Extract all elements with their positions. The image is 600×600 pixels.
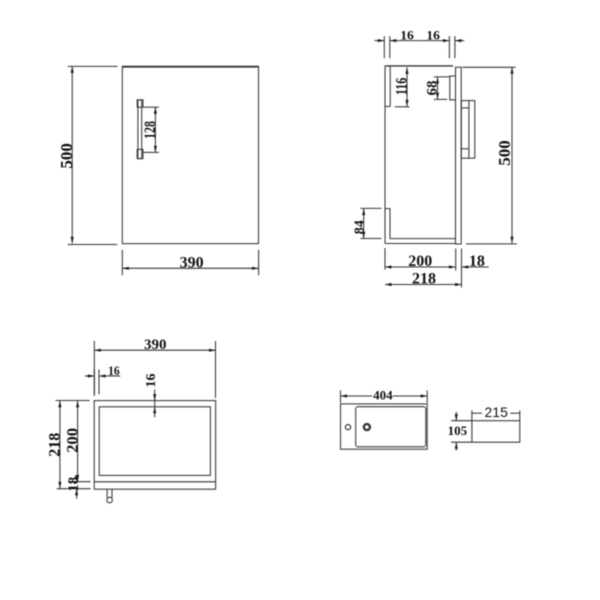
svg-text:215: 215 <box>485 404 509 420</box>
svg-text:18: 18 <box>469 253 485 270</box>
svg-text:18: 18 <box>66 477 82 492</box>
svg-text:105: 105 <box>448 423 468 438</box>
svg-text:16: 16 <box>144 374 159 388</box>
svg-text:200: 200 <box>408 253 432 270</box>
svg-text:218: 218 <box>47 433 64 457</box>
svg-text:390: 390 <box>144 337 167 353</box>
svg-text:68: 68 <box>425 81 441 96</box>
svg-text:500: 500 <box>57 143 76 169</box>
svg-text:390: 390 <box>180 254 204 271</box>
svg-text:16: 16 <box>426 27 440 42</box>
svg-text:16: 16 <box>108 363 120 378</box>
svg-text:200: 200 <box>64 428 81 453</box>
svg-text:128: 128 <box>142 121 159 139</box>
svg-text:404: 404 <box>373 388 393 403</box>
svg-text:16: 16 <box>400 27 414 42</box>
svg-text:500: 500 <box>495 140 514 166</box>
svg-text:116: 116 <box>393 78 410 96</box>
svg-text:218: 218 <box>412 271 436 288</box>
svg-text:84: 84 <box>352 220 367 234</box>
